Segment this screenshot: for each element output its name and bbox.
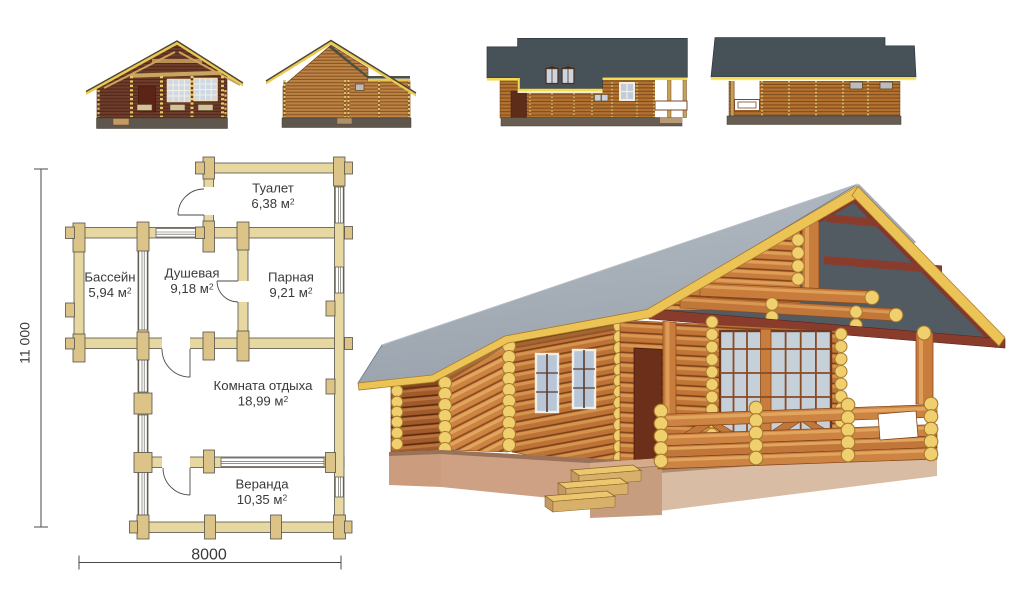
- svg-text:11 000: 11 000: [17, 322, 33, 364]
- svg-text:10,35 м2: 10,35 м2: [237, 492, 288, 507]
- svg-text:Бассейн: Бассейн: [84, 270, 135, 285]
- svg-text:8000: 8000: [191, 547, 227, 564]
- svg-text:Комната отдыха: Комната отдыха: [214, 378, 314, 393]
- svg-text:9,18 м2: 9,18 м2: [170, 281, 213, 296]
- svg-text:Туалет: Туалет: [252, 181, 294, 196]
- svg-text:Душевая: Душевая: [164, 266, 219, 281]
- svg-text:5,94 м2: 5,94 м2: [88, 285, 131, 300]
- svg-text:6,38 м2: 6,38 м2: [251, 196, 294, 211]
- svg-text:18,99 м2: 18,99 м2: [238, 394, 289, 409]
- svg-text:Парная: Парная: [268, 270, 314, 285]
- svg-text:Веранда: Веранда: [235, 477, 289, 492]
- svg-text:9,21 м2: 9,21 м2: [269, 285, 312, 300]
